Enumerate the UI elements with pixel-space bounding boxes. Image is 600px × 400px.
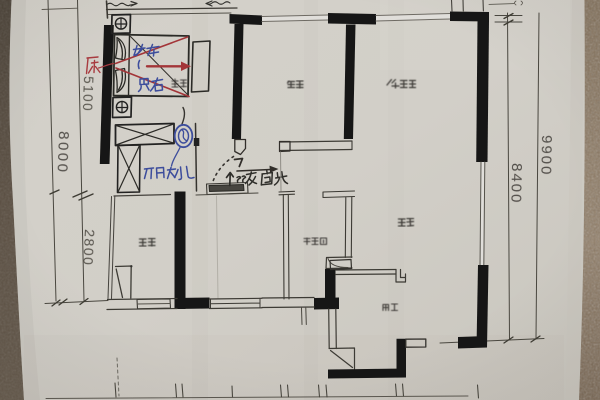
svg-text:8400: 8400 <box>507 163 525 205</box>
svg-text:8000: 8000 <box>53 131 72 175</box>
svg-text:9900: 9900 <box>537 135 555 177</box>
svg-text:5100: 5100 <box>80 76 96 113</box>
svg-text:2800: 2800 <box>80 229 98 267</box>
